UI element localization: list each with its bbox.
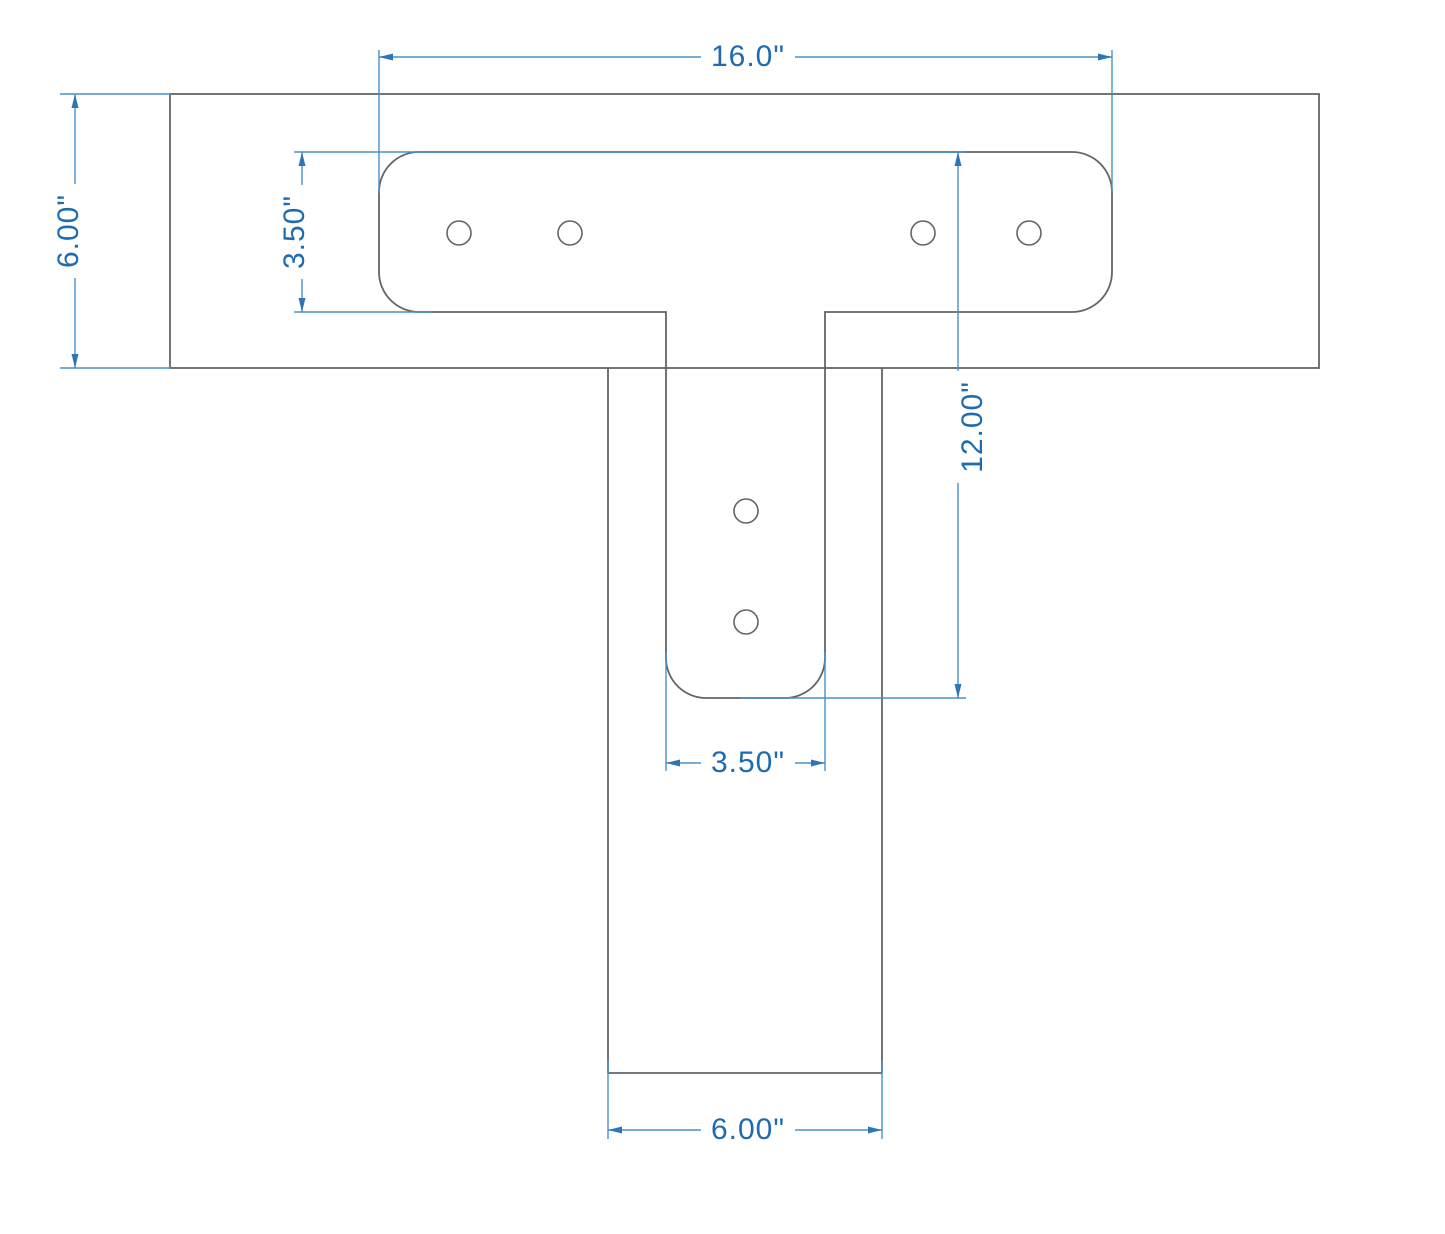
bolt-hole	[734, 610, 758, 634]
dim-label-vertical-extent: 12.00"	[954, 371, 992, 483]
arrow-right	[868, 1127, 882, 1134]
arrow-up	[72, 94, 79, 108]
arrowheads-group	[72, 54, 1113, 1134]
arrow-up	[955, 152, 962, 166]
arrow-right	[1098, 54, 1112, 61]
arrow-down	[299, 298, 306, 312]
drawing-svg	[0, 0, 1445, 1234]
arrow-up	[299, 152, 306, 166]
arrow-down	[955, 684, 962, 698]
bolt-hole	[447, 221, 471, 245]
post-outline	[608, 368, 882, 1073]
bolt-holes	[447, 221, 1041, 634]
dim-label-plate-width: 16.0"	[701, 38, 795, 76]
bolt-hole	[558, 221, 582, 245]
arrow-left	[666, 760, 680, 767]
bolt-hole	[734, 499, 758, 523]
bolt-hole	[911, 221, 935, 245]
arrow-left	[608, 1127, 622, 1134]
beam-outline	[170, 94, 1319, 368]
dimension-drawing-canvas: 16.0" 6.00" 3.50" 12.00" 3.50" 6.00"	[0, 0, 1445, 1234]
bolt-hole	[1017, 221, 1041, 245]
outline-group	[170, 94, 1319, 1073]
dim-label-plate-arm-height: 3.50"	[276, 185, 314, 279]
dim-label-post-width: 6.00"	[701, 1111, 795, 1149]
arrow-left	[379, 54, 393, 61]
dimension-lines-group	[60, 50, 1112, 1139]
dim-label-tongue-width: 3.50"	[701, 744, 795, 782]
arrow-right	[811, 760, 825, 767]
arrow-down	[72, 354, 79, 368]
dim-label-beam-height: 6.00"	[50, 184, 88, 278]
t-plate-outline	[379, 152, 1112, 698]
